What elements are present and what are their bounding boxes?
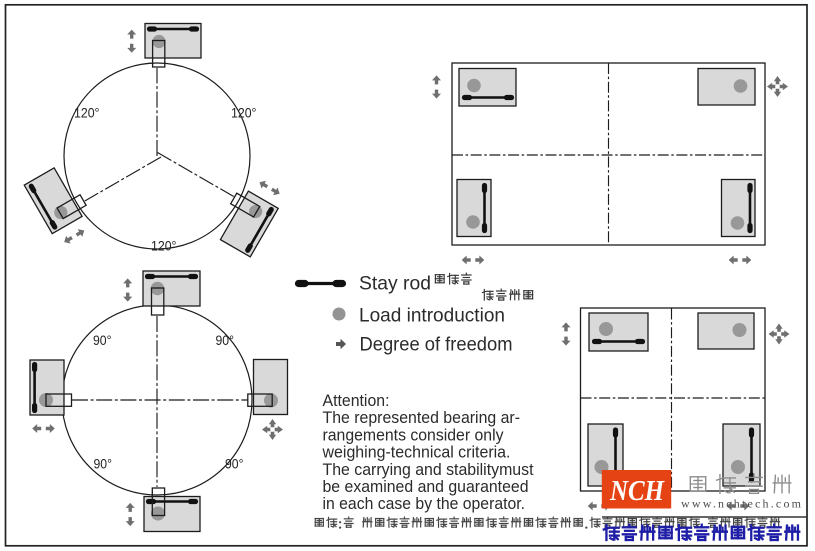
svg-text:Load introduction: Load introduction — [359, 305, 505, 327]
svg-text:in each case by the operator.: in each case by the operator. — [323, 495, 526, 513]
svg-text:rangements consider only: rangements consider only — [323, 426, 505, 444]
svg-text:90°: 90° — [225, 456, 244, 472]
svg-text:www.nchtech.com: www.nchtech.com — [681, 497, 803, 511]
svg-text:120°: 120° — [231, 105, 257, 121]
svg-text:weighing-technical criteria.: weighing-technical criteria. — [322, 444, 511, 462]
svg-text:120°: 120° — [74, 105, 100, 121]
svg-text:90°: 90° — [94, 456, 113, 472]
svg-text:Stay rod: Stay rod — [359, 273, 431, 295]
svg-text:90°: 90° — [216, 332, 235, 348]
svg-text:120°: 120° — [151, 238, 177, 254]
svg-text:The represented bearing ar-: The represented bearing ar- — [323, 409, 521, 427]
svg-text:NCH: NCH — [609, 475, 665, 507]
svg-text:Attention:: Attention: — [323, 392, 390, 410]
svg-text:be examined and guaranteed: be examined and guaranteed — [323, 478, 529, 496]
svg-text:90°: 90° — [93, 332, 112, 348]
svg-text:The carrying and stabilitymust: The carrying and stabilitymust — [323, 461, 534, 479]
svg-text:Degree of freedom: Degree of freedom — [360, 334, 513, 356]
